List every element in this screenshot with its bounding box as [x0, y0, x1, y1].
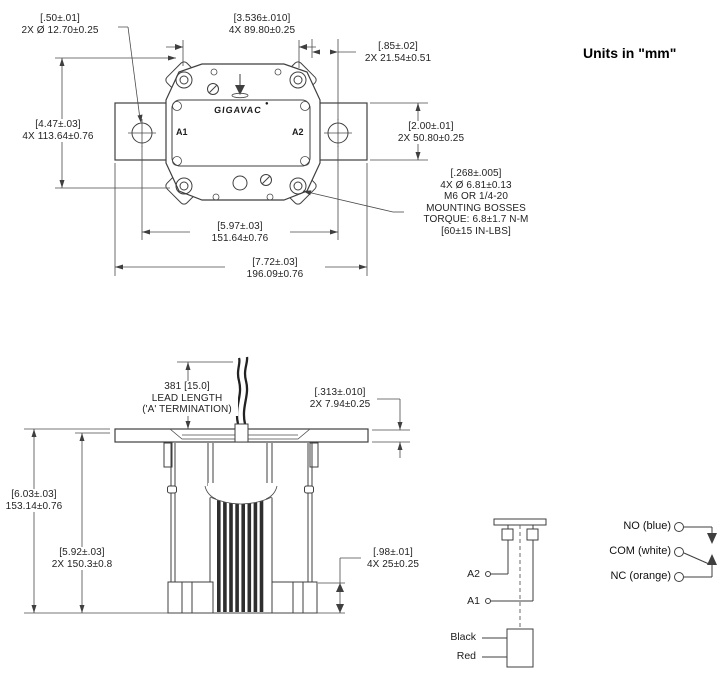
contact-wiring-diagram — [675, 523, 718, 582]
dim-hole-edge-offset: [.85±.02] 2X 21.54±0.51 — [356, 41, 440, 64]
dim-bolt-spacing-vertical: [4.47±.03] 4X 113.64±0.76 — [6, 119, 110, 142]
wire-label-red: Red — [428, 650, 476, 662]
dim-foot-height: [.98±.01] 4X 25±0.25 — [361, 547, 425, 570]
dim-overall-width: [7.72±.03] 196.09±0.76 — [225, 257, 325, 280]
contact-label-no: NO (blue) — [578, 520, 671, 532]
gigavac-logo: GIGAVAC — [206, 105, 269, 115]
schematic-terminal-a1: A1 — [452, 595, 480, 607]
lead-length-note: 381 [15.0] LEAD LENGTH ('A' TERMINATION) — [136, 381, 238, 416]
terminal-label-a1: A1 — [176, 127, 188, 137]
units-note: Units in "mm" — [583, 45, 676, 61]
contact-label-nc: NC (orange) — [578, 570, 671, 582]
dim-bolt-spacing-horizontal: [3.536±.010] 4X 89.80±0.25 — [196, 13, 328, 36]
terminal-label-a2: A2 — [292, 127, 304, 137]
dim-plate-height: [2.00±.01] 2X 50.80±0.25 — [395, 121, 467, 144]
dim-plate-thickness: [.313±.010] 2X 7.94±0.25 — [303, 387, 377, 410]
dim-hole-diameter: [.50±.01] 2X Ø 12.70±0.25 — [2, 13, 118, 36]
dim-overall-height: [6.03±.03] 153.14±0.76 — [1, 489, 67, 512]
dim-body-height: [5.92±.03] 2X 150.3±0.8 — [46, 547, 118, 570]
contact-label-com: COM (white) — [578, 545, 671, 557]
schematic-terminal-a2: A2 — [452, 568, 480, 580]
technical-drawing-page: [.50±.01] 2X Ø 12.70±0.25 [3.536±.010] 4… — [0, 0, 724, 676]
coil-terminal-schematic — [482, 519, 546, 667]
registered-mark-icon: ● — [265, 101, 269, 107]
wire-label-black: Black — [428, 631, 476, 643]
mounting-bosses-note: [.268±.005] 4X Ø 6.81±0.13 M6 OR 1/4-20 … — [404, 168, 548, 237]
dim-hole-spacing: [5.97±.03] 151.64±0.76 — [190, 221, 290, 244]
